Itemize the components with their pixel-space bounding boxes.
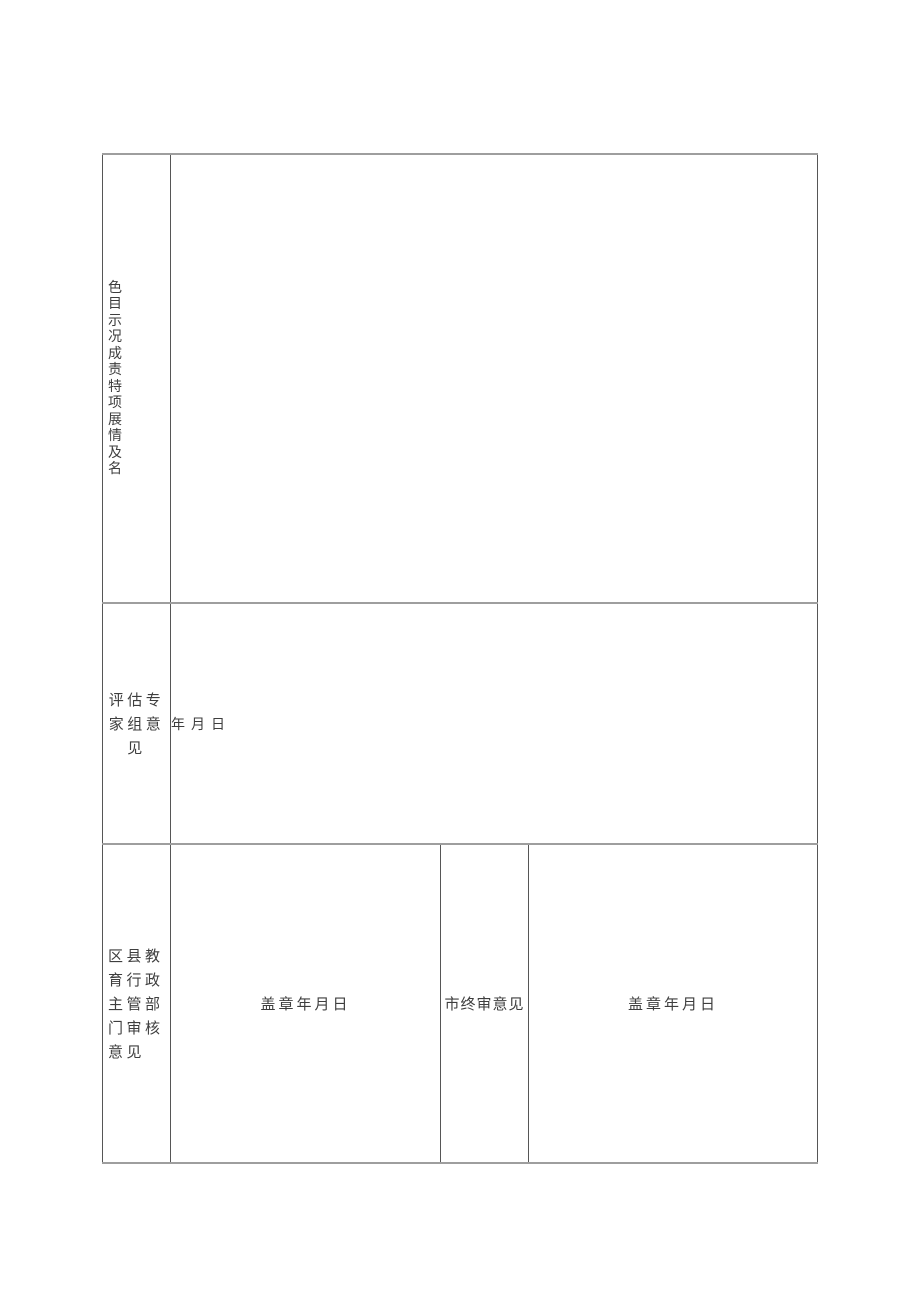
project-display-label-cell: 色目示况成责特项展情及名 <box>103 154 171 603</box>
district-review-stamp-cell: 盖章年月日 <box>171 844 441 1163</box>
document-page: 色目示况成责特项展情及名 评估专家组意见 年月日 区县教育行政主管部门审核意见 … <box>0 0 920 1301</box>
city-final-review-label-cell: 市终审意见 <box>441 844 529 1163</box>
district-stamp-date-placeholder: 盖章年月日 <box>260 995 350 1013</box>
expert-panel-date-placeholder: 年月日 <box>171 717 231 733</box>
expert-panel-row: 评估专家组意见 年月日 <box>103 603 818 844</box>
district-review-label: 区县教育行政主管部门审核意见 <box>108 944 165 1064</box>
evaluation-form-table: 色目示况成责特项展情及名 评估专家组意见 年月日 区县教育行政主管部门审核意见 … <box>102 153 818 1164</box>
city-final-review-label: 市终审意见 <box>444 995 524 1013</box>
project-display-content-cell <box>171 154 818 603</box>
project-display-row: 色目示况成责特项展情及名 <box>103 154 818 603</box>
review-row: 区县教育行政主管部门审核意见 盖章年月日 市终审意见 盖章年月日 <box>103 844 818 1163</box>
expert-panel-label: 评估专家组意见 <box>108 688 165 760</box>
project-display-label: 色目示况成责特项展情及名 <box>108 280 124 478</box>
expert-panel-label-cell: 评估专家组意见 <box>103 603 171 844</box>
expert-panel-content-cell: 年月日 <box>171 603 818 844</box>
city-final-stamp-cell: 盖章年月日 <box>529 844 818 1163</box>
district-review-label-cell: 区县教育行政主管部门审核意见 <box>103 844 171 1163</box>
city-stamp-date-placeholder: 盖章年月日 <box>628 995 718 1013</box>
